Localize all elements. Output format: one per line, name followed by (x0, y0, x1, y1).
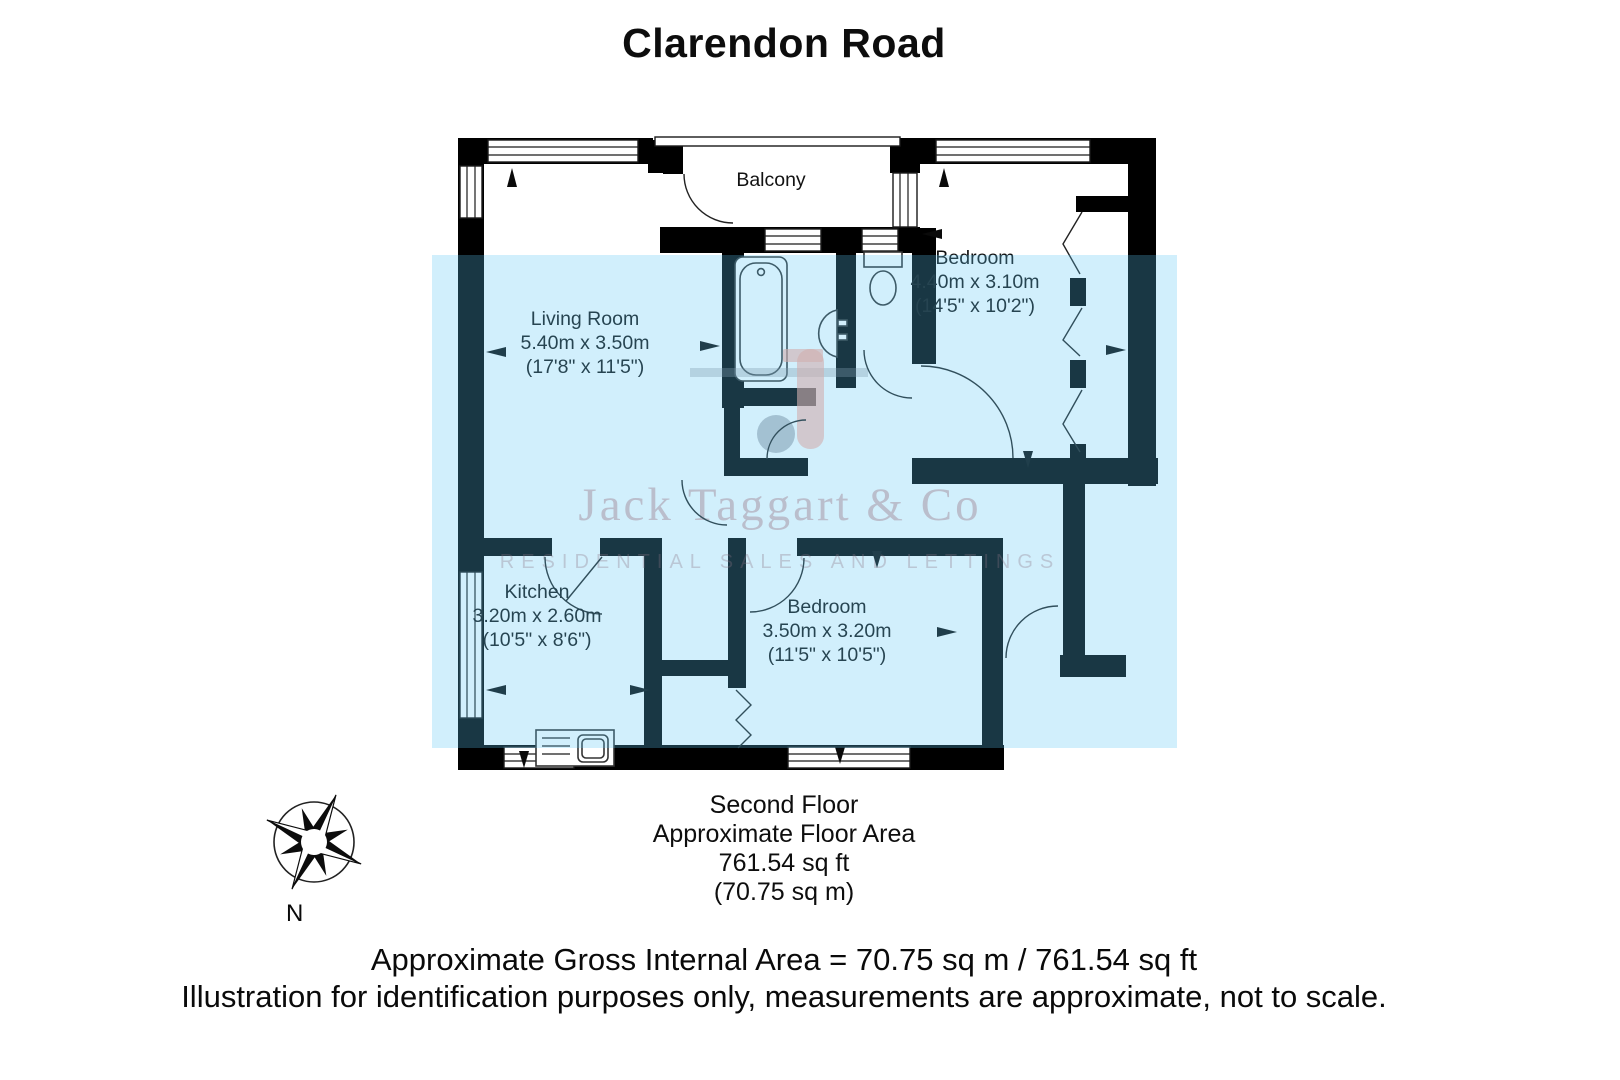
gross-area-line: Approximate Gross Internal Area = 70.75 … (0, 941, 1568, 978)
toilet-icon (864, 252, 902, 305)
balcony-balustrade (655, 137, 900, 146)
floor-area-metric: (70.75 sq m) (0, 878, 1568, 907)
floor-plan: Jack Taggart & Co RESIDENTIAL SALES AND … (0, 0, 1620, 1080)
disclaimer-line: Illustration for identification purposes… (0, 978, 1568, 1015)
watermark-name: Jack Taggart & Co (578, 479, 981, 531)
bifold-door (736, 690, 751, 748)
floor-name: Second Floor (0, 791, 1568, 820)
logo-bar (690, 368, 868, 377)
floor-area-caption: Approximate Floor Area (0, 820, 1568, 849)
floor-area-imperial: 761.54 sq ft (0, 849, 1568, 878)
watermark-tagline: RESIDENTIAL SALES AND LETTINGS (500, 551, 1060, 573)
floor-summary: Second Floor Approximate Floor Area 761.… (0, 791, 1568, 907)
kitchen-sink-icon (536, 730, 614, 766)
wardrobe-front (1063, 212, 1082, 452)
logo-j-stem (797, 349, 824, 449)
bathtub-icon (735, 257, 787, 381)
floorplan-page: Clarendon Road (0, 0, 1620, 1080)
footer-disclaimer: Approximate Gross Internal Area = 70.75 … (0, 941, 1568, 1015)
